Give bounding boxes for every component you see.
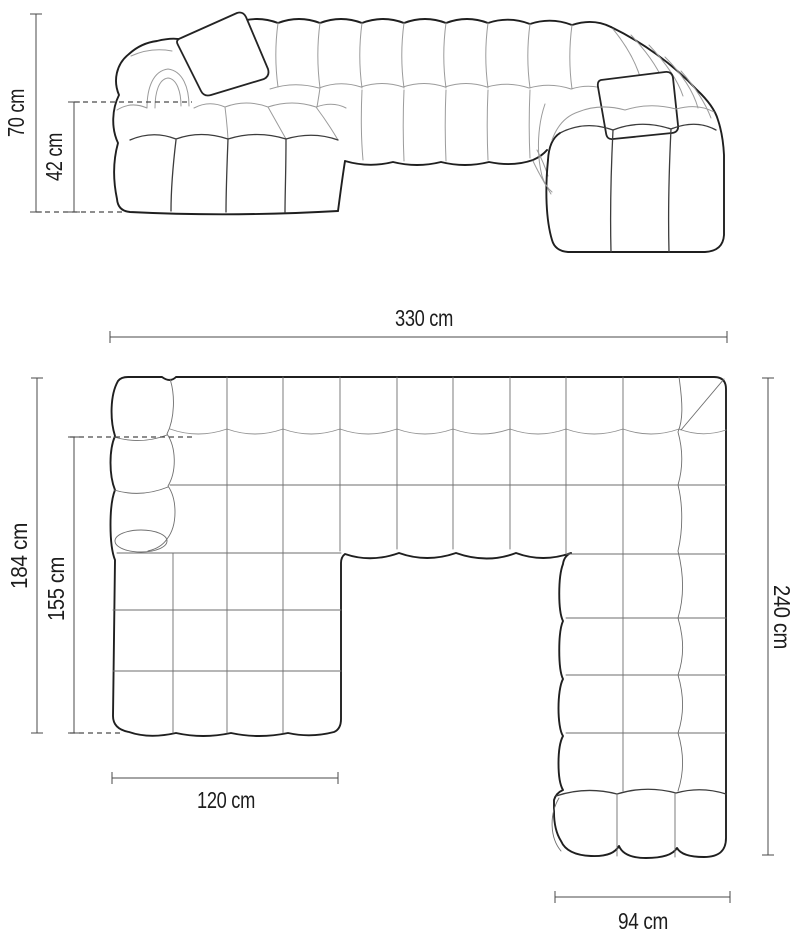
sofa-front-sketch [113, 13, 724, 253]
pillow [177, 13, 269, 96]
plan-view: 330 cm 184 cm 155 cm 240 cm 120 cm 94 cm [6, 305, 795, 934]
dimension-overall-height: 70 cm [3, 14, 42, 212]
dimension-right-width: 94 cm [555, 891, 730, 934]
diagram-canvas: 70 cm 42 cm [0, 0, 810, 940]
front-elevation-view: 70 cm 42 cm [3, 13, 724, 253]
front-seat-front-edge [338, 150, 547, 211]
dimension-label-184cm: 184 cm [6, 523, 32, 589]
front-seat-channels [317, 88, 530, 161]
dimension-line [110, 331, 727, 343]
front-chaise-top-row [194, 103, 346, 140]
front-arm-arches [117, 50, 189, 110]
dimension-label-155cm: 155 cm [43, 557, 69, 621]
front-back-channels [234, 23, 572, 89]
dimension-left-chaise-width: 120 cm [112, 772, 338, 813]
dimension-label-330cm: 330 cm [395, 305, 453, 331]
dimension-line [30, 14, 42, 212]
dimension-overall-width: 330 cm [110, 305, 727, 343]
front-seatback-scallops [270, 84, 608, 91]
front-chaise-mid-row [130, 135, 338, 141]
dimension-line [555, 891, 730, 903]
dimension-label-42cm: 42 cm [41, 133, 67, 181]
front-right-chaise-outline [546, 27, 724, 252]
dimension-label-94cm: 94 cm [618, 908, 668, 934]
front-chaise-face-channels [171, 139, 286, 212]
plan-outline [111, 377, 727, 858]
sofa-dimension-diagram: 70 cm 42 cm [0, 0, 810, 940]
dimension-right-depth: 240 cm [762, 378, 795, 855]
dimension-left-depth: 184 cm [6, 378, 43, 733]
dimension-label-120cm: 120 cm [197, 787, 255, 813]
dimension-line [112, 772, 338, 784]
dimension-line [68, 102, 80, 212]
dimension-line [68, 437, 80, 733]
front-right-chaise-face-channels [611, 129, 671, 252]
dimension-label-240cm: 240 cm [769, 585, 795, 649]
sofa-plan-sketch [111, 377, 727, 858]
dimension-label-70cm: 70 cm [3, 89, 29, 137]
dimension-line [31, 378, 43, 733]
